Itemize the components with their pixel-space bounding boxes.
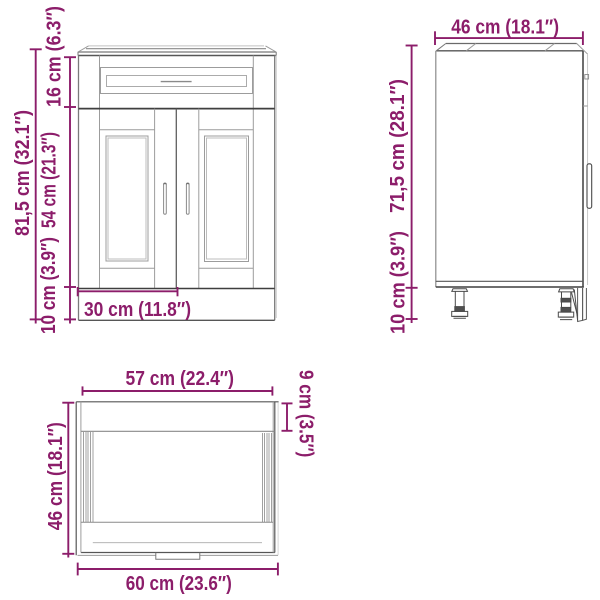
svg-text:30 cm (11.8″): 30 cm (11.8″) [84,298,191,321]
svg-text:60 cm (23.6″): 60 cm (23.6″) [126,572,232,595]
svg-text:54 cm (21.3″): 54 cm (21.3″) [37,132,60,228]
svg-text:71,5 cm (28.1″): 71,5 cm (28.1″) [386,79,409,213]
svg-text:57 cm (22.4″): 57 cm (22.4″) [126,367,235,390]
svg-text:9 cm (3.5″): 9 cm (3.5″) [295,370,318,457]
svg-text:81,5 cm (32.1″): 81,5 cm (32.1″) [11,110,34,236]
svg-text:46 cm (18.1″): 46 cm (18.1″) [44,422,67,530]
svg-text:46 cm (18.1″): 46 cm (18.1″) [451,16,559,39]
svg-text:16 cm (6.3″): 16 cm (6.3″) [43,6,66,107]
svg-text:10 cm (3.9″): 10 cm (3.9″) [37,237,60,334]
svg-text:10 cm (3.9″): 10 cm (3.9″) [387,231,410,334]
